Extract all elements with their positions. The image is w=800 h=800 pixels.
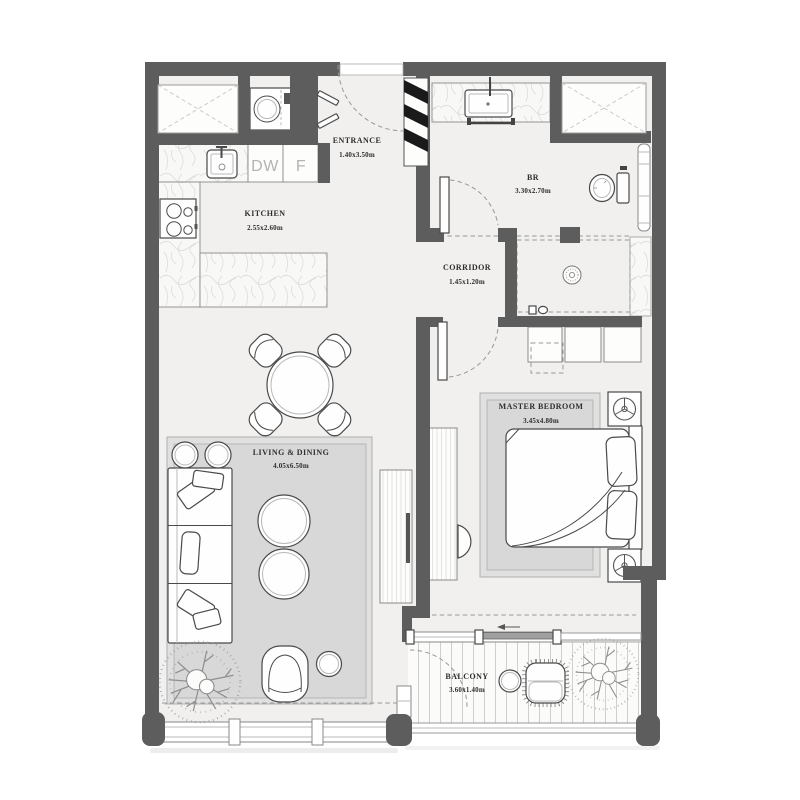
closet-top-left	[158, 85, 238, 133]
balcony-jamb	[397, 686, 411, 717]
shower-glass-panel	[638, 144, 650, 231]
sofa-pillow	[192, 470, 224, 490]
door-leaf	[438, 322, 447, 380]
shower-drain-icon	[563, 266, 581, 284]
bathroom-label: BR	[527, 173, 539, 182]
kitchen-dims: 2.55x2.60m	[247, 224, 283, 232]
sofa-pillow	[180, 531, 201, 574]
balcony-chair	[524, 661, 567, 705]
column	[386, 714, 412, 746]
bed	[506, 424, 642, 551]
washing-machine	[250, 88, 292, 130]
toilet-paper-holder-icon	[620, 166, 627, 170]
armchair	[262, 646, 308, 702]
balcony-table	[499, 670, 521, 692]
window-mullion	[312, 719, 323, 745]
side-table	[205, 442, 231, 468]
living-tv-console	[380, 470, 412, 603]
floor-plan-canvas: ENTRANCE 1.40x3.50m KITCHEN 2.55x2.60m B…	[0, 0, 800, 800]
stove	[160, 199, 198, 238]
kitchen-label: KITCHEN	[245, 209, 286, 218]
entrance-dims: 1.40x3.50m	[339, 151, 375, 159]
corridor-label: CORRIDOR	[443, 263, 491, 272]
living-dims: 4.05x6.50m	[273, 462, 309, 470]
living-label: LIVING & DINING	[253, 448, 330, 457]
dining-table	[267, 352, 333, 418]
service-shaft	[404, 78, 428, 166]
toiletry-bottle-icon	[529, 306, 536, 314]
pillow	[606, 490, 637, 539]
side-table	[172, 442, 198, 468]
sofa	[168, 468, 232, 643]
toiletry-jar-icon	[539, 306, 548, 313]
lamp-icon	[614, 398, 636, 420]
coffee-table	[259, 549, 309, 599]
shadow	[405, 746, 660, 750]
living-window-band	[159, 719, 390, 745]
kitchen-sink	[207, 147, 237, 178]
dishwasher-label: DW	[251, 158, 279, 175]
floor-plan-page: ENTRANCE 1.40x3.50m KITCHEN 2.55x2.60m B…	[0, 0, 800, 800]
bedroom-dims: 3.45x4.80m	[523, 417, 559, 425]
column	[142, 712, 165, 746]
fixed-glazing	[561, 633, 641, 640]
balcony-label: BALCONY	[445, 672, 488, 681]
bathroom-dims: 3.30x2.70m	[515, 187, 551, 195]
shadow	[150, 748, 398, 753]
window-mullion	[229, 719, 240, 745]
bedroom-label: MASTER BEDROOM	[499, 402, 584, 411]
entrance-label: ENTRANCE	[333, 136, 382, 145]
column	[636, 714, 660, 746]
tv-icon	[406, 513, 410, 563]
sliding-panel	[480, 633, 554, 640]
nightstand-top	[608, 392, 641, 426]
washer-panel	[284, 93, 291, 104]
balcony-rail	[408, 723, 658, 733]
coffee-table	[258, 495, 310, 547]
corridor-dims: 1.45x1.20m	[449, 278, 485, 286]
fridge-label: F	[296, 158, 306, 175]
balcony-dims: 3.60x1.40m	[449, 686, 485, 694]
pillow	[606, 436, 638, 486]
closet-top-right	[562, 83, 646, 133]
accent-table	[317, 652, 342, 677]
door-leaf	[440, 177, 449, 233]
